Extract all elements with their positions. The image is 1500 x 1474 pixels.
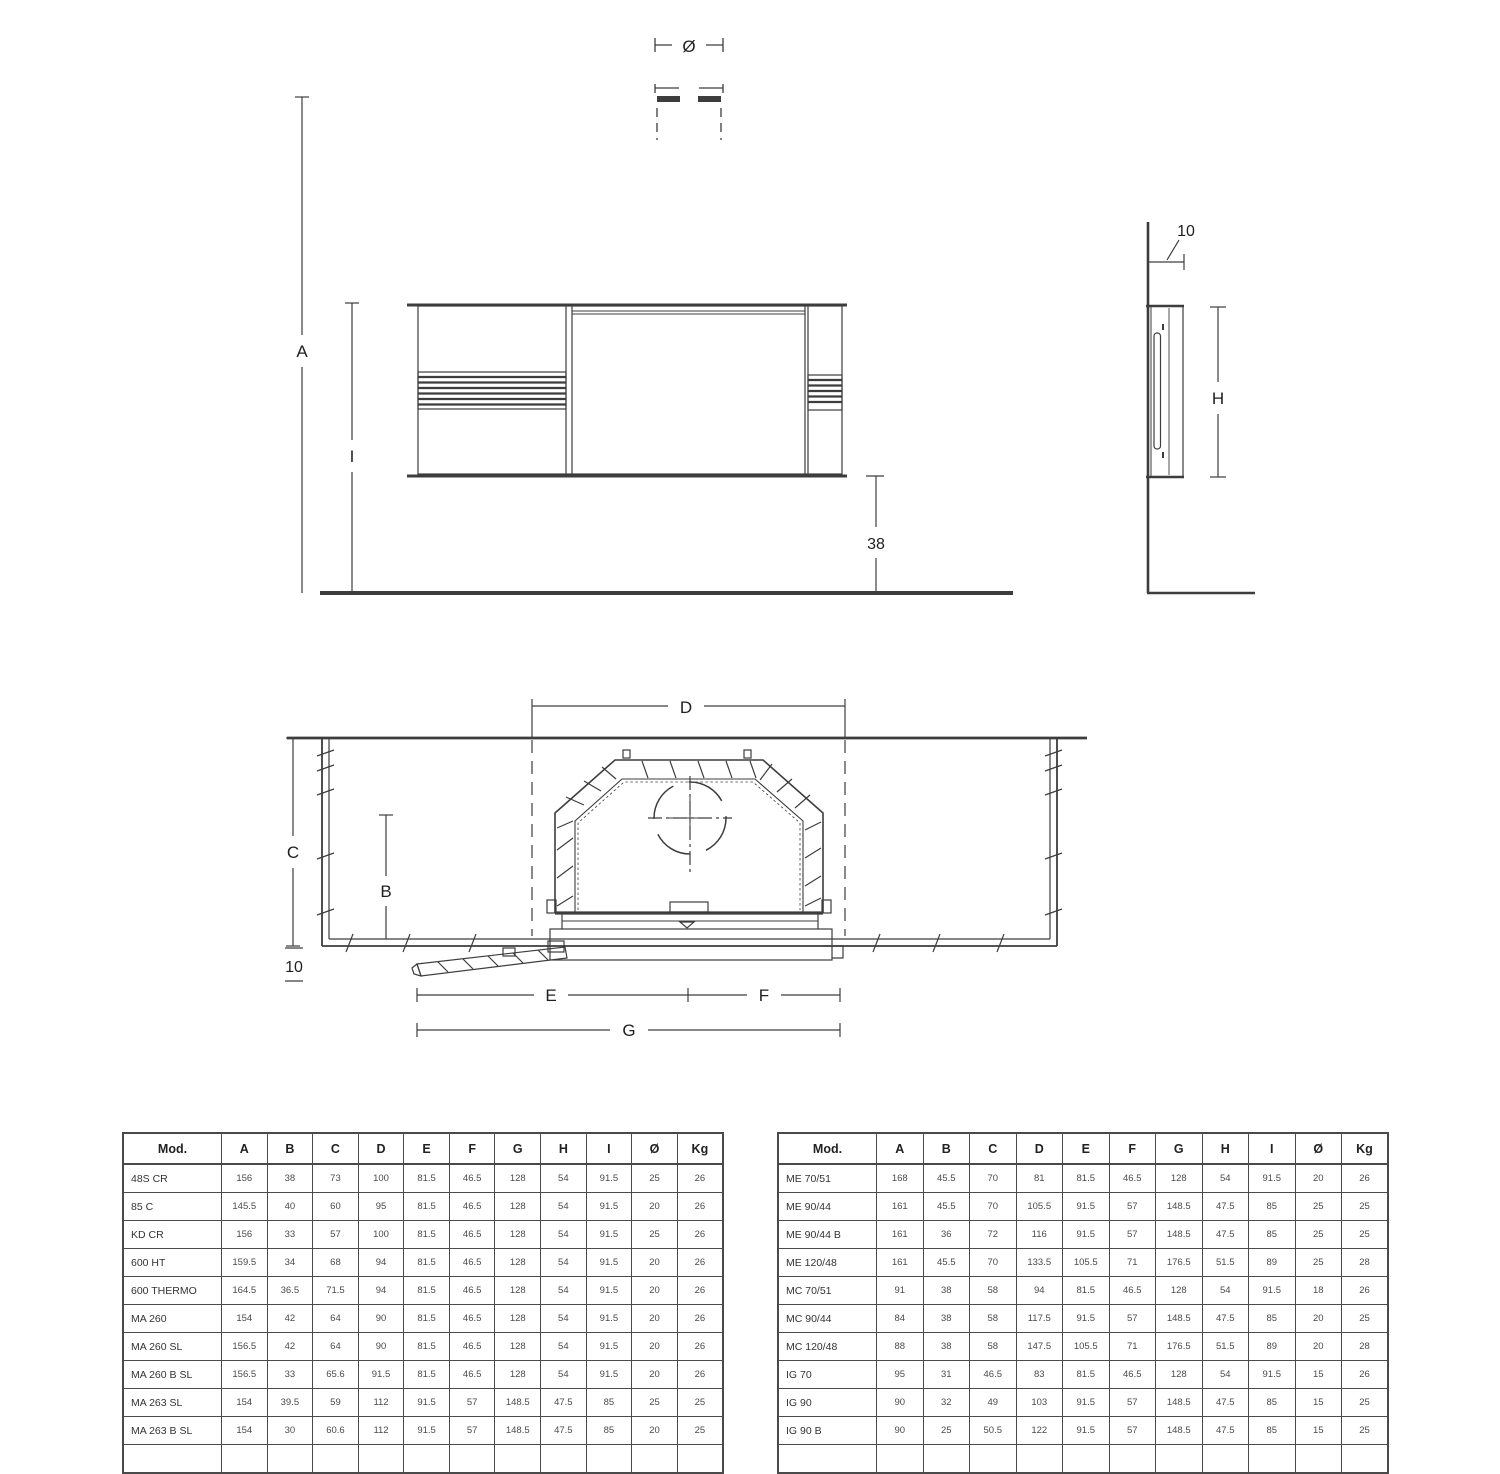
dim-label-diameter: Ø <box>682 37 695 56</box>
value-cell: 85 <box>586 1417 632 1445</box>
value-cell: 128 <box>495 1333 541 1361</box>
value-cell: 58 <box>970 1305 1017 1333</box>
value-cell: 148.5 <box>495 1417 541 1445</box>
value-cell: 36 <box>923 1221 970 1249</box>
value-cell: 91.5 <box>586 1305 632 1333</box>
value-cell: 20 <box>632 1249 678 1277</box>
value-cell: 85 <box>1249 1193 1296 1221</box>
value-cell: 105.5 <box>1063 1249 1110 1277</box>
value-cell: 91.5 <box>358 1361 404 1389</box>
value-cell: 147.5 <box>1016 1333 1063 1361</box>
value-cell: 112 <box>358 1389 404 1417</box>
value-cell: 90 <box>358 1305 404 1333</box>
value-cell: 105.5 <box>1016 1193 1063 1221</box>
value-cell: 71.5 <box>313 1277 359 1305</box>
value-cell: 81.5 <box>404 1361 450 1389</box>
value-cell: 25 <box>632 1164 678 1193</box>
value-cell: 89 <box>1249 1249 1296 1277</box>
value-cell: 94 <box>1016 1277 1063 1305</box>
value-cell: 30 <box>267 1417 313 1445</box>
value-cell: 95 <box>877 1361 924 1389</box>
value-cell: 20 <box>1295 1333 1342 1361</box>
empty-cell <box>313 1445 359 1474</box>
value-cell: 133.5 <box>1016 1249 1063 1277</box>
value-cell: 81.5 <box>404 1333 450 1361</box>
value-cell: 71 <box>1109 1249 1156 1277</box>
value-cell: 45.5 <box>923 1249 970 1277</box>
value-cell: 33 <box>267 1361 313 1389</box>
model-cell: 85 C <box>123 1193 222 1221</box>
value-cell: 54 <box>541 1193 587 1221</box>
value-cell: 26 <box>677 1221 723 1249</box>
value-cell: 47.5 <box>1202 1305 1249 1333</box>
column-header: C <box>313 1133 359 1164</box>
value-cell: 128 <box>495 1221 541 1249</box>
side-grille-slot <box>1154 333 1161 449</box>
value-cell: 46.5 <box>449 1277 495 1305</box>
column-header: Ø <box>1295 1133 1342 1164</box>
value-cell: 38 <box>923 1305 970 1333</box>
value-cell: 128 <box>495 1249 541 1277</box>
value-cell: 105.5 <box>1063 1333 1110 1361</box>
value-cell: 81 <box>1016 1164 1063 1193</box>
value-cell: 31 <box>923 1361 970 1389</box>
value-cell: 40 <box>267 1193 313 1221</box>
value-cell: 91.5 <box>1063 1221 1110 1249</box>
empty-cell <box>222 1445 268 1474</box>
model-cell: KD CR <box>123 1221 222 1249</box>
value-cell: 91.5 <box>586 1361 632 1389</box>
value-cell: 20 <box>1295 1164 1342 1193</box>
value-cell: 59 <box>313 1389 359 1417</box>
value-cell: 103 <box>1016 1389 1063 1417</box>
value-cell: 84 <box>877 1305 924 1333</box>
value-cell: 42 <box>267 1333 313 1361</box>
right-grille <box>808 375 842 410</box>
value-cell: 70 <box>970 1164 1017 1193</box>
value-cell: 100 <box>358 1164 404 1193</box>
value-cell: 28 <box>1342 1333 1389 1361</box>
dim-label-I: I <box>350 447 355 466</box>
model-cell: 600 THERMO <box>123 1277 222 1305</box>
value-cell: 57 <box>449 1417 495 1445</box>
value-cell: 156 <box>222 1221 268 1249</box>
table-row: 85 C145.540609581.546.51285491.52026 <box>123 1193 723 1221</box>
value-cell: 116 <box>1016 1221 1063 1249</box>
value-cell: 25 <box>1342 1305 1389 1333</box>
value-cell: 91.5 <box>586 1221 632 1249</box>
value-cell: 161 <box>877 1221 924 1249</box>
value-cell: 83 <box>1016 1361 1063 1389</box>
value-cell: 81.5 <box>1063 1361 1110 1389</box>
table-row: MA 26015442649081.546.51285491.52026 <box>123 1305 723 1333</box>
value-cell: 20 <box>632 1361 678 1389</box>
value-cell: 128 <box>495 1277 541 1305</box>
value-cell: 54 <box>541 1361 587 1389</box>
table-row-partial <box>778 1445 1388 1474</box>
value-cell: 57 <box>1109 1193 1156 1221</box>
value-cell: 26 <box>677 1193 723 1221</box>
table-row: ME 90/4416145.570105.591.557148.547.5852… <box>778 1193 1388 1221</box>
value-cell: 25 <box>1342 1417 1389 1445</box>
value-cell: 46.5 <box>1109 1164 1156 1193</box>
value-cell: 148.5 <box>495 1389 541 1417</box>
dim-label-G: G <box>622 1021 635 1040</box>
value-cell: 39.5 <box>267 1389 313 1417</box>
column-header: H <box>1202 1133 1249 1164</box>
flue-centre-mark <box>648 776 732 874</box>
value-cell: 46.5 <box>449 1221 495 1249</box>
value-cell: 25 <box>632 1389 678 1417</box>
value-cell: 91.5 <box>586 1193 632 1221</box>
value-cell: 85 <box>1249 1389 1296 1417</box>
empty-cell <box>970 1445 1017 1474</box>
empty-cell <box>541 1445 587 1474</box>
empty-cell <box>1342 1445 1389 1474</box>
empty-cell <box>267 1445 313 1474</box>
value-cell: 148.5 <box>1156 1221 1203 1249</box>
table-row: ME 120/4816145.570133.5105.571176.551.58… <box>778 1249 1388 1277</box>
value-cell: 85 <box>1249 1221 1296 1249</box>
value-cell: 91.5 <box>404 1417 450 1445</box>
value-cell: 145.5 <box>222 1193 268 1221</box>
value-cell: 47.5 <box>1202 1417 1249 1445</box>
value-cell: 73 <box>313 1164 359 1193</box>
technical-drawing: Ø A I <box>0 0 1500 1100</box>
value-cell: 42 <box>267 1305 313 1333</box>
value-cell: 58 <box>970 1333 1017 1361</box>
value-cell: 57 <box>1109 1389 1156 1417</box>
value-cell: 26 <box>677 1164 723 1193</box>
value-cell: 91.5 <box>586 1333 632 1361</box>
column-header: E <box>404 1133 450 1164</box>
empty-cell <box>586 1445 632 1474</box>
empty-cell <box>404 1445 450 1474</box>
value-cell: 46.5 <box>449 1164 495 1193</box>
empty-cell <box>1249 1445 1296 1474</box>
value-cell: 25 <box>1342 1389 1389 1417</box>
value-cell: 25 <box>1295 1249 1342 1277</box>
value-cell: 54 <box>541 1221 587 1249</box>
dim-label-A: A <box>296 342 308 361</box>
value-cell: 50.5 <box>970 1417 1017 1445</box>
value-cell: 46.5 <box>970 1361 1017 1389</box>
value-cell: 54 <box>541 1333 587 1361</box>
model-cell: MA 260 B SL <box>123 1361 222 1389</box>
model-cell: MA 263 B SL <box>123 1417 222 1445</box>
value-cell: 25 <box>1295 1193 1342 1221</box>
empty-cell <box>1016 1445 1063 1474</box>
value-cell: 168 <box>877 1164 924 1193</box>
value-cell: 32 <box>923 1389 970 1417</box>
table-row: IG 70953146.58381.546.51285491.51526 <box>778 1361 1388 1389</box>
value-cell: 148.5 <box>1156 1389 1203 1417</box>
value-cell: 20 <box>632 1333 678 1361</box>
header-row: Mod.ABCDEFGHIØKg <box>123 1133 723 1164</box>
value-cell: 20 <box>1295 1305 1342 1333</box>
value-cell: 91.5 <box>1063 1305 1110 1333</box>
column-header: I <box>586 1133 632 1164</box>
value-cell: 49 <box>970 1389 1017 1417</box>
header-row: Mod.ABCDEFGHIØKg <box>778 1133 1388 1164</box>
value-cell: 90 <box>877 1389 924 1417</box>
value-cell: 91.5 <box>1063 1389 1110 1417</box>
value-cell: 28 <box>1342 1249 1389 1277</box>
value-cell: 91.5 <box>1249 1361 1296 1389</box>
empty-cell <box>1109 1445 1156 1474</box>
value-cell: 46.5 <box>449 1305 495 1333</box>
value-cell: 20 <box>632 1193 678 1221</box>
table-row: MA 260 SL156.542649081.546.51285491.5202… <box>123 1333 723 1361</box>
dim-label-10-side: 10 <box>1177 223 1195 240</box>
value-cell: 54 <box>1202 1361 1249 1389</box>
value-cell: 47.5 <box>541 1389 587 1417</box>
value-cell: 47.5 <box>1202 1193 1249 1221</box>
table-row: MA 263 SL15439.55911291.557148.547.58525… <box>123 1389 723 1417</box>
column-header: A <box>877 1133 924 1164</box>
value-cell: 128 <box>495 1305 541 1333</box>
column-header: Ø <box>632 1133 678 1164</box>
value-cell: 81.5 <box>404 1193 450 1221</box>
value-cell: 148.5 <box>1156 1305 1203 1333</box>
value-cell: 85 <box>1249 1417 1296 1445</box>
value-cell: 81.5 <box>404 1249 450 1277</box>
value-cell: 70 <box>970 1193 1017 1221</box>
value-cell: 128 <box>495 1361 541 1389</box>
value-cell: 25 <box>1342 1221 1389 1249</box>
dim-label-C: C <box>287 843 299 862</box>
value-cell: 91.5 <box>1063 1193 1110 1221</box>
flue-detail: Ø <box>655 37 723 140</box>
value-cell: 25 <box>1342 1193 1389 1221</box>
spec-table-right: Mod.ABCDEFGHIØKgME 70/5116845.5708181.54… <box>777 1132 1389 1474</box>
value-cell: 47.5 <box>1202 1221 1249 1249</box>
dimension-drawing-svg: Ø A I <box>0 0 1500 1100</box>
value-cell: 46.5 <box>449 1361 495 1389</box>
value-cell: 128 <box>1156 1277 1203 1305</box>
table-row: KD CR156335710081.546.51285491.52526 <box>123 1221 723 1249</box>
damper-knob <box>670 902 708 912</box>
value-cell: 54 <box>1202 1164 1249 1193</box>
dim-label-F: F <box>759 986 769 1005</box>
value-cell: 128 <box>1156 1361 1203 1389</box>
value-cell: 90 <box>877 1417 924 1445</box>
value-cell: 81.5 <box>1063 1164 1110 1193</box>
value-cell: 38 <box>923 1277 970 1305</box>
value-cell: 154 <box>222 1389 268 1417</box>
column-header: F <box>1109 1133 1156 1164</box>
empty-cell <box>877 1445 924 1474</box>
dim-label-B: B <box>380 882 391 901</box>
column-header: D <box>1016 1133 1063 1164</box>
value-cell: 148.5 <box>1156 1193 1203 1221</box>
model-cell: ME 120/48 <box>778 1249 877 1277</box>
table-row: 600 HT159.534689481.546.51285491.52026 <box>123 1249 723 1277</box>
value-cell: 68 <box>313 1249 359 1277</box>
value-cell: 45.5 <box>923 1164 970 1193</box>
value-cell: 72 <box>970 1221 1017 1249</box>
table-row: ME 90/44 B161367211691.557148.547.585252… <box>778 1221 1388 1249</box>
value-cell: 54 <box>541 1305 587 1333</box>
value-cell: 122 <box>1016 1417 1063 1445</box>
column-header: Kg <box>1342 1133 1389 1164</box>
value-cell: 25 <box>632 1221 678 1249</box>
plan-view: D C <box>285 698 1087 1040</box>
value-cell: 54 <box>1202 1277 1249 1305</box>
value-cell: 20 <box>632 1417 678 1445</box>
column-header: C <box>970 1133 1017 1164</box>
value-cell: 156.5 <box>222 1333 268 1361</box>
value-cell: 26 <box>677 1277 723 1305</box>
value-cell: 25 <box>677 1389 723 1417</box>
value-cell: 26 <box>677 1361 723 1389</box>
column-header: E <box>1063 1133 1110 1164</box>
empty-cell <box>1156 1445 1203 1474</box>
value-cell: 46.5 <box>449 1193 495 1221</box>
value-cell: 91.5 <box>586 1277 632 1305</box>
left-grille <box>418 372 566 409</box>
model-cell: ME 90/44 <box>778 1193 877 1221</box>
model-cell: MA 263 SL <box>123 1389 222 1417</box>
value-cell: 70 <box>970 1249 1017 1277</box>
value-cell: 54 <box>541 1249 587 1277</box>
value-cell: 26 <box>1342 1361 1389 1389</box>
value-cell: 176.5 <box>1156 1249 1203 1277</box>
value-cell: 20 <box>632 1277 678 1305</box>
table-row: MC 70/519138589481.546.51285491.51826 <box>778 1277 1388 1305</box>
value-cell: 57 <box>1109 1221 1156 1249</box>
value-cell: 26 <box>1342 1164 1389 1193</box>
value-cell: 45.5 <box>923 1193 970 1221</box>
dim-label-10-plan: 10 <box>285 959 303 976</box>
value-cell: 54 <box>541 1164 587 1193</box>
value-cell: 91.5 <box>404 1389 450 1417</box>
table-row: ME 70/5116845.5708181.546.51285491.52026 <box>778 1164 1388 1193</box>
table-row-partial <box>123 1445 723 1474</box>
value-cell: 26 <box>1342 1277 1389 1305</box>
value-cell: 25 <box>1295 1221 1342 1249</box>
model-cell: MA 260 <box>123 1305 222 1333</box>
model-cell: 600 HT <box>123 1249 222 1277</box>
value-cell: 81.5 <box>404 1277 450 1305</box>
value-cell: 38 <box>923 1333 970 1361</box>
value-cell: 161 <box>877 1249 924 1277</box>
value-cell: 95 <box>358 1193 404 1221</box>
value-cell: 81.5 <box>1063 1277 1110 1305</box>
model-cell: IG 90 B <box>778 1417 877 1445</box>
value-cell: 89 <box>1249 1333 1296 1361</box>
value-cell: 128 <box>1156 1164 1203 1193</box>
value-cell: 57 <box>1109 1417 1156 1445</box>
empty-cell <box>1202 1445 1249 1474</box>
value-cell: 117.5 <box>1016 1305 1063 1333</box>
value-cell: 65.6 <box>313 1361 359 1389</box>
value-cell: 112 <box>358 1417 404 1445</box>
value-cell: 128 <box>495 1193 541 1221</box>
column-header: Kg <box>677 1133 723 1164</box>
value-cell: 91.5 <box>1249 1277 1296 1305</box>
model-cell: ME 90/44 B <box>778 1221 877 1249</box>
datasheet-page: { "drawing": { "front_view": { "labels":… <box>0 0 1500 1427</box>
value-cell: 81.5 <box>404 1305 450 1333</box>
empty-cell <box>449 1445 495 1474</box>
model-cell: 48S CR <box>123 1164 222 1193</box>
table-row: MC 120/48883858147.5105.571176.551.58920… <box>778 1333 1388 1361</box>
model-cell: IG 70 <box>778 1361 877 1389</box>
table-row: 48S CR156387310081.546.51285491.52526 <box>123 1164 723 1193</box>
empty-cell <box>677 1445 723 1474</box>
value-cell: 91.5 <box>1249 1164 1296 1193</box>
spec-table-left: Mod.ABCDEFGHIØKg48S CR156387310081.546.5… <box>122 1132 724 1474</box>
value-cell: 34 <box>267 1249 313 1277</box>
value-cell: 25 <box>677 1417 723 1445</box>
value-cell: 64 <box>313 1305 359 1333</box>
value-cell: 15 <box>1295 1389 1342 1417</box>
table-row: MC 90/44843858117.591.557148.547.5852025 <box>778 1305 1388 1333</box>
value-cell: 88 <box>877 1333 924 1361</box>
value-cell: 64 <box>313 1333 359 1361</box>
value-cell: 164.5 <box>222 1277 268 1305</box>
column-header: Mod. <box>778 1133 877 1164</box>
dim-label-38: 38 <box>867 536 885 553</box>
empty-cell <box>923 1445 970 1474</box>
column-header: B <box>267 1133 313 1164</box>
value-cell: 15 <box>1295 1417 1342 1445</box>
column-header: I <box>1249 1133 1296 1164</box>
column-header: G <box>495 1133 541 1164</box>
value-cell: 54 <box>541 1277 587 1305</box>
value-cell: 90 <box>358 1333 404 1361</box>
model-cell: ME 70/51 <box>778 1164 877 1193</box>
value-cell: 57 <box>313 1221 359 1249</box>
value-cell: 58 <box>970 1277 1017 1305</box>
value-cell: 91 <box>877 1277 924 1305</box>
column-header: B <box>923 1133 970 1164</box>
value-cell: 60 <box>313 1193 359 1221</box>
empty-cell <box>1295 1445 1342 1474</box>
value-cell: 94 <box>358 1277 404 1305</box>
empty-cell <box>632 1445 678 1474</box>
table-row: IG 90 B902550.512291.557148.547.5851525 <box>778 1417 1388 1445</box>
empty-cell <box>358 1445 404 1474</box>
table-row: IG 9090324910391.557148.547.5851525 <box>778 1389 1388 1417</box>
value-cell: 85 <box>1249 1305 1296 1333</box>
value-cell: 85 <box>586 1389 632 1417</box>
value-cell: 36.5 <box>267 1277 313 1305</box>
dim-label-D: D <box>680 698 692 717</box>
value-cell: 57 <box>449 1389 495 1417</box>
value-cell: 91.5 <box>586 1249 632 1277</box>
column-header: H <box>541 1133 587 1164</box>
model-cell: MC 90/44 <box>778 1305 877 1333</box>
value-cell: 148.5 <box>1156 1417 1203 1445</box>
value-cell: 38 <box>267 1164 313 1193</box>
value-cell: 26 <box>677 1333 723 1361</box>
value-cell: 26 <box>677 1305 723 1333</box>
value-cell: 57 <box>1109 1305 1156 1333</box>
value-cell: 159.5 <box>222 1249 268 1277</box>
value-cell: 47.5 <box>541 1417 587 1445</box>
value-cell: 15 <box>1295 1361 1342 1389</box>
value-cell: 46.5 <box>1109 1361 1156 1389</box>
value-cell: 46.5 <box>449 1249 495 1277</box>
column-header: F <box>449 1133 495 1164</box>
value-cell: 71 <box>1109 1333 1156 1361</box>
side-view: 10 H <box>1146 222 1255 593</box>
value-cell: 46.5 <box>449 1333 495 1361</box>
value-cell: 20 <box>632 1305 678 1333</box>
column-header: G <box>1156 1133 1203 1164</box>
